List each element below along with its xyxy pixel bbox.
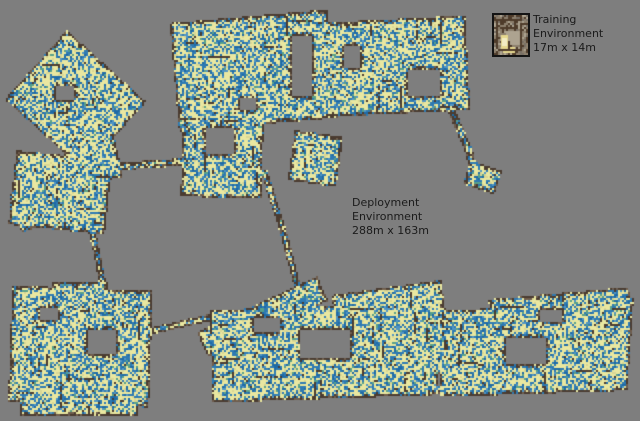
- training-label-line-2: Environment: [533, 27, 603, 41]
- figure-root: Training Environment 17m x 14m Deploymen…: [0, 0, 640, 421]
- training-map-thumbnail: [494, 15, 528, 55]
- deployment-environment-map: [0, 0, 640, 421]
- training-legend: Training Environment 17m x 14m: [492, 13, 603, 57]
- training-label-line-1: Training: [533, 13, 603, 27]
- training-environment-label: Training Environment 17m x 14m: [533, 13, 603, 55]
- deployment-label-line-1: Deployment: [352, 196, 429, 210]
- training-map-thumbnail-frame: [492, 13, 530, 57]
- deployment-label-line-3: 288m x 163m: [352, 224, 429, 238]
- deployment-environment-label: Deployment Environment 288m x 163m: [352, 196, 429, 238]
- training-label-line-3: 17m x 14m: [533, 41, 603, 55]
- deployment-label-line-2: Environment: [352, 210, 429, 224]
